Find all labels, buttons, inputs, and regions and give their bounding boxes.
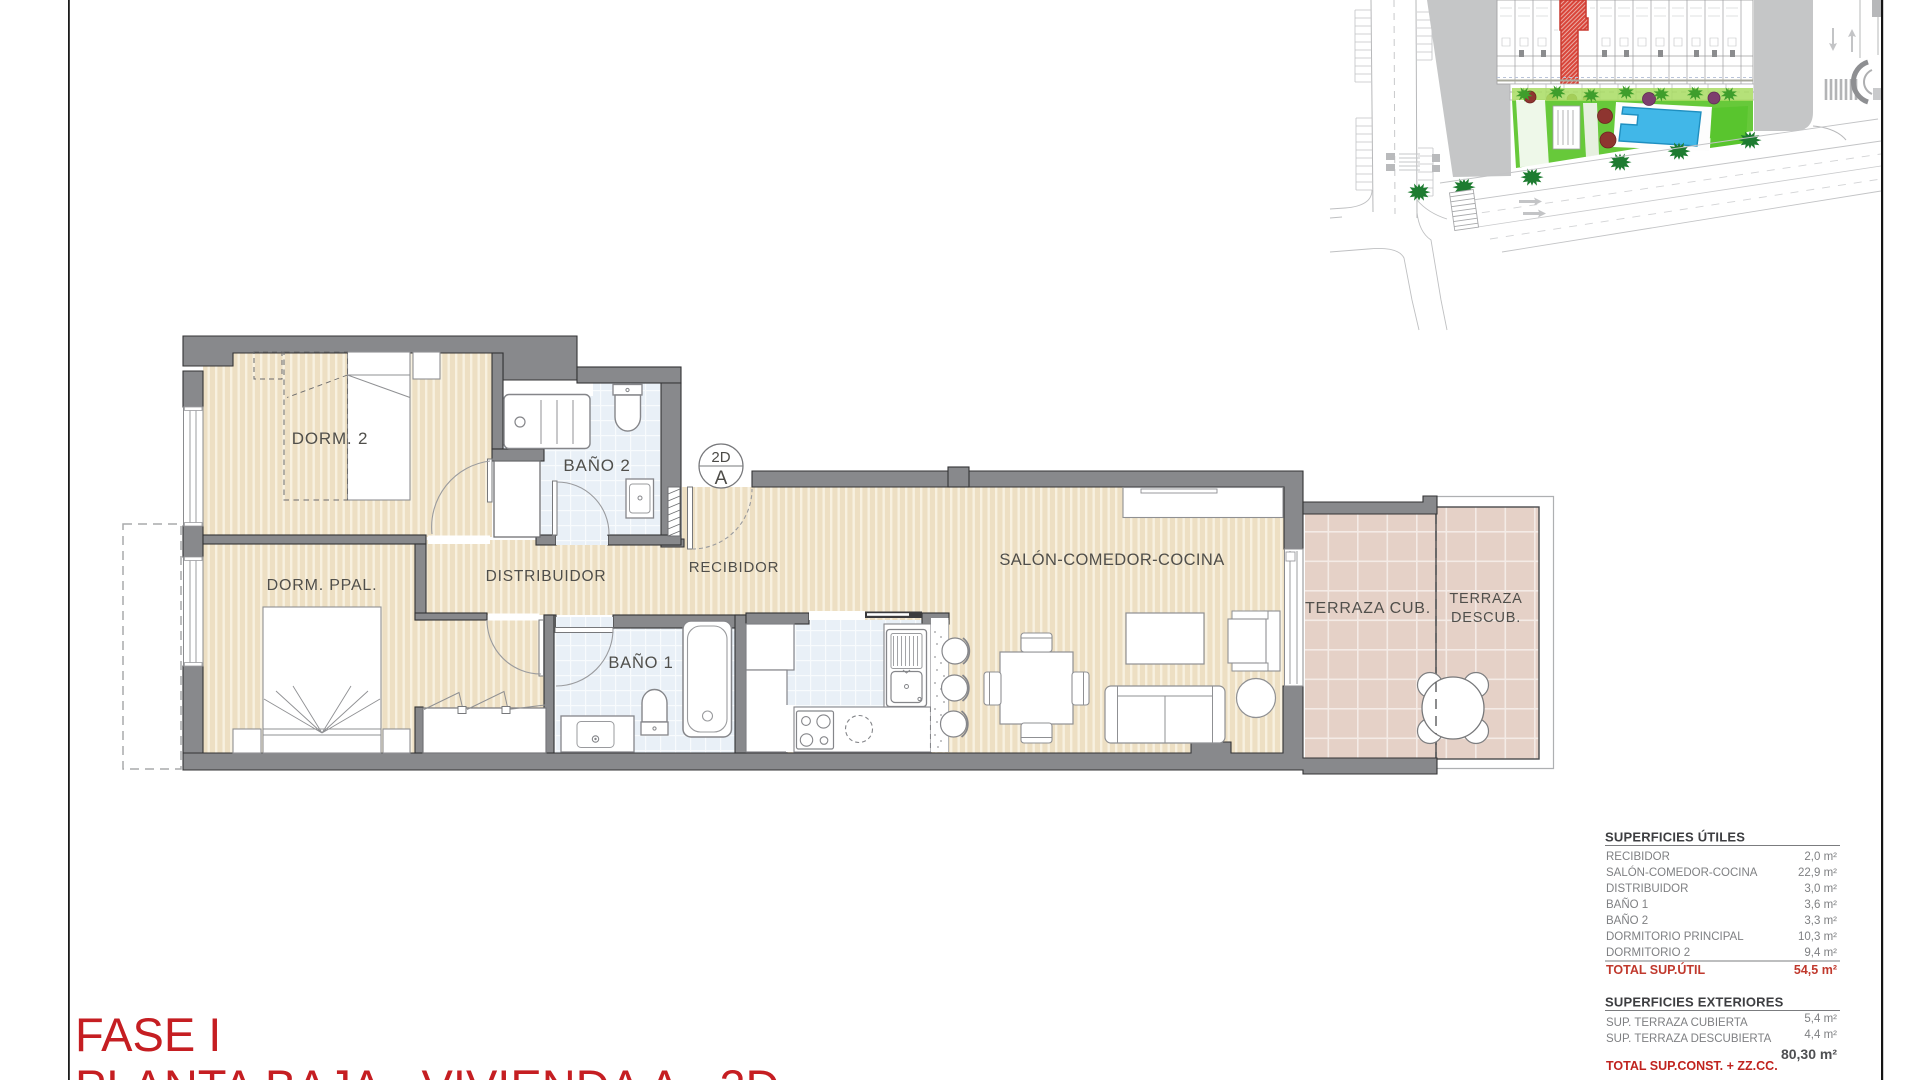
svg-text:TOTAL SUP.CONST. + ZZ.CC.: TOTAL SUP.CONST. + ZZ.CC. <box>1606 1059 1778 1073</box>
svg-text:5,4 m²: 5,4 m² <box>1804 1013 1837 1025</box>
svg-text:TERRAZA CUB.: TERRAZA CUB. <box>1305 600 1431 617</box>
svg-text:DESCUB.: DESCUB. <box>1451 610 1521 626</box>
svg-text:2,0 m²: 2,0 m² <box>1804 851 1837 863</box>
svg-text:SALÓN-COMEDOR-COCINA: SALÓN-COMEDOR-COCINA <box>999 550 1224 569</box>
svg-text:DISTRIBUIDOR: DISTRIBUIDOR <box>486 568 607 585</box>
svg-text:DORM. PPAL.: DORM. PPAL. <box>267 577 378 594</box>
svg-text:3,0 m²: 3,0 m² <box>1804 883 1837 895</box>
svg-text:SUP. TERRAZA CUBIERTA: SUP. TERRAZA CUBIERTA <box>1606 1017 1748 1029</box>
svg-text:RECIBIDOR: RECIBIDOR <box>1606 851 1670 863</box>
svg-text:RECIBIDOR: RECIBIDOR <box>689 559 780 576</box>
svg-text:BAÑO 2: BAÑO 2 <box>1606 914 1648 927</box>
svg-text:DISTRIBUIDOR: DISTRIBUIDOR <box>1606 883 1688 895</box>
svg-text:TOTAL SUP.ÚTIL: TOTAL SUP.ÚTIL <box>1606 962 1705 977</box>
svg-text:A: A <box>715 468 728 489</box>
svg-text:22,9 m²: 22,9 m² <box>1798 867 1837 879</box>
svg-text:PLANTA BAJA - VIVIENDA A - 2D: PLANTA BAJA - VIVIENDA A - 2D <box>75 1060 779 1080</box>
svg-text:DORMITORIO PRINCIPAL: DORMITORIO PRINCIPAL <box>1606 931 1744 943</box>
svg-text:SUPERFICIES EXTERIORES: SUPERFICIES EXTERIORES <box>1605 995 1784 1010</box>
svg-text:3,3 m²: 3,3 m² <box>1804 915 1837 927</box>
svg-text:BAÑO 1: BAÑO 1 <box>1606 898 1648 911</box>
svg-text:FASE I: FASE I <box>75 1008 221 1061</box>
svg-text:BAÑO 2: BAÑO 2 <box>563 456 630 475</box>
svg-text:SUP. TERRAZA DESCUBIERTA: SUP. TERRAZA DESCUBIERTA <box>1606 1033 1772 1045</box>
svg-text:TERRAZA: TERRAZA <box>1449 591 1522 607</box>
svg-text:80,30 m²: 80,30 m² <box>1781 1046 1837 1062</box>
svg-text:2D: 2D <box>711 449 730 466</box>
svg-text:9,4 m²: 9,4 m² <box>1804 947 1837 959</box>
svg-text:BAÑO 1: BAÑO 1 <box>608 652 673 672</box>
svg-text:10,3 m²: 10,3 m² <box>1798 931 1837 943</box>
svg-text:3,6 m²: 3,6 m² <box>1804 899 1837 911</box>
svg-text:SUPERFICIES ÚTILES: SUPERFICIES ÚTILES <box>1605 830 1745 845</box>
svg-text:DORM. 2: DORM. 2 <box>292 429 368 448</box>
svg-text:54,5 m²: 54,5 m² <box>1794 963 1837 977</box>
svg-text:4,4 m²: 4,4 m² <box>1804 1029 1837 1041</box>
svg-text:SALÓN-COMEDOR-COCINA: SALÓN-COMEDOR-COCINA <box>1606 866 1758 879</box>
svg-text:DORMITORIO 2: DORMITORIO 2 <box>1606 947 1690 959</box>
